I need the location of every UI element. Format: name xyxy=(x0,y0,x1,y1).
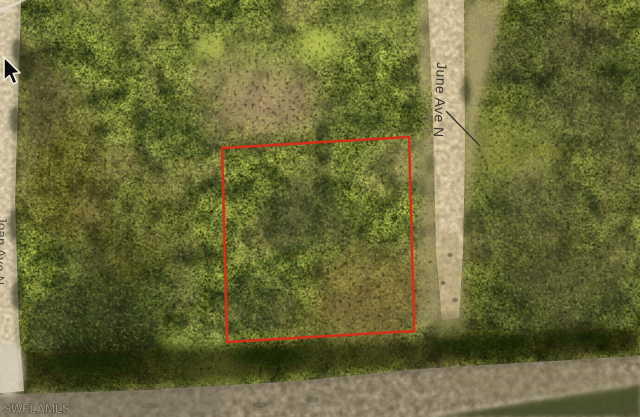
svg-text:SWFLAMLS: SWFLAMLS xyxy=(3,402,70,416)
svg-text:June Ave N: June Ave N xyxy=(431,62,450,138)
